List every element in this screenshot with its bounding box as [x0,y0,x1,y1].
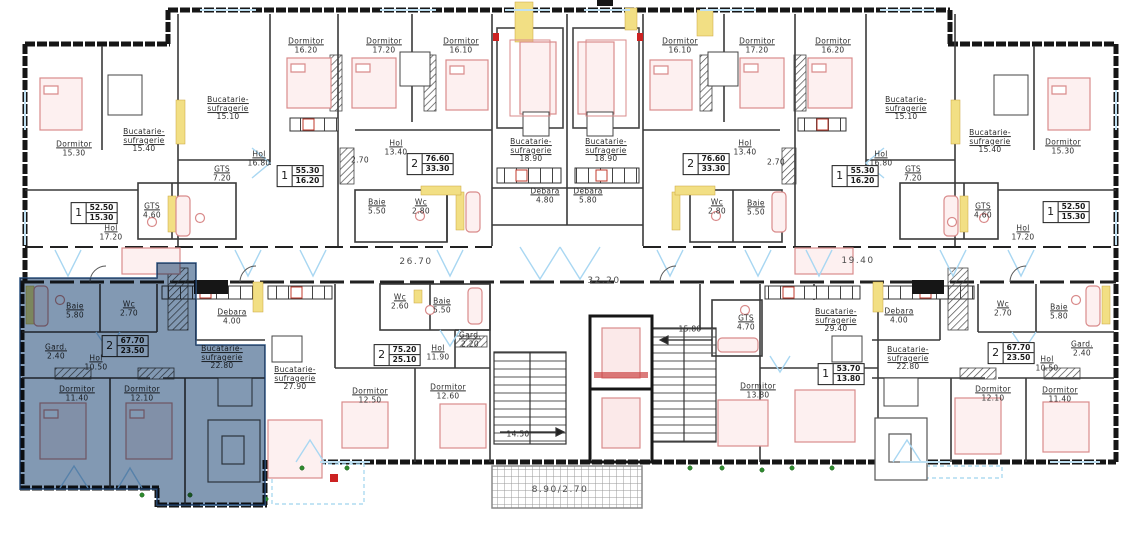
room-name: Bucatarie- sufragerie [887,346,929,363]
room-name: Bucatarie- sufragerie [207,96,249,113]
apartment-badge: 152.5015.30 [71,202,118,224]
room-label: Dormitor13.80 [740,382,776,399]
room-label: Hol17.20 [100,224,123,241]
room-label: Dormitor16.20 [815,37,851,54]
room-label: Hol17.20 [1012,224,1035,241]
room-label: GTS7.20 [904,165,922,182]
badge-room-count: 1 [72,203,87,223]
room-area: 16.20 [815,46,851,55]
room-label: Debara5.80 [573,187,602,204]
room-label: Gard.2.40 [1071,340,1093,357]
room-label: Hol11.90 [427,344,450,361]
room-label: Bucatarie- sufragerie29.40 [815,308,857,334]
apartment-badge: 155.3016.20 [277,165,324,187]
apartment-badge: 152.5015.30 [1043,201,1090,223]
apartment-badge: 155.3016.20 [832,165,879,187]
room-label: Dormitor12.50 [352,387,388,404]
room-area: 29.40 [815,325,857,334]
room-label: Debara4.80 [530,187,559,204]
apartment-badge: 275.2025.10 [374,344,421,366]
room-label: Bucatarie- sufragerie27.90 [274,366,316,392]
room-label: GTS4.70 [737,314,755,331]
room-area: 7.20 [904,174,922,183]
room-area: 13.40 [385,148,408,157]
apartment-badge: 276.6033.30 [683,153,730,175]
room-area: 16.10 [443,46,479,55]
room-area: 4.60 [974,211,992,220]
badge-area-living: 33.30 [699,165,729,174]
room-label: Baie5.50 [368,198,386,215]
dimension-label: 19.40 [841,256,874,266]
room-name: Bucatarie- sufragerie [510,138,552,155]
room-area: 16.80 [248,159,271,168]
room-area: 15.30 [56,149,92,158]
room-area: 12.50 [352,396,388,405]
room-name: Bucatarie- sufragerie [585,138,627,155]
room-area: 2.70 [767,159,785,168]
room-area: 16.20 [288,46,324,55]
room-label: Dormitor12.60 [430,383,466,400]
room-name: Bucatarie- sufragerie [274,366,316,383]
room-label: GTS4.60 [143,202,161,219]
badge-area-living: 15.30 [87,214,117,223]
room-area: 5.50 [747,208,765,217]
badge-area-total: 76.60 [423,154,453,164]
room-area: 17.20 [100,233,123,242]
dimension-label: 8.90/2.70 [532,485,589,495]
room-area: 22.80 [887,363,929,372]
room-label: Dormitor11.40 [1042,386,1078,403]
room-area: 15.40 [123,145,165,154]
badge-area-total: 53.70 [834,364,864,374]
room-area: 12.60 [430,392,466,401]
badge-area-total: 76.60 [699,154,729,164]
room-label: 15.80 [679,326,702,335]
room-area: 2.70 [351,157,369,166]
room-label: Dormitor17.20 [739,37,775,54]
room-label: Dormitor16.20 [288,37,324,54]
badge-room-count: 1 [1044,202,1059,222]
room-area: 4.00 [884,316,913,325]
room-area: 4.60 [143,211,161,220]
room-area: 4.70 [737,323,755,332]
room-area: 11.40 [1042,395,1078,404]
room-area: 5.50 [433,306,451,315]
room-area: 12.10 [975,394,1011,403]
room-name: Bucatarie- sufragerie [815,308,857,325]
room-label: Dormitor12.10 [975,385,1011,402]
badge-area-total: 75.20 [390,345,420,355]
room-label: Bucatarie- sufragerie15.40 [123,128,165,154]
room-area: 16.10 [662,46,698,55]
apartment-badge: 276.6033.30 [407,153,454,175]
room-name: Bucatarie- sufragerie [123,128,165,145]
badge-room-count: 1 [819,364,834,384]
badge-room-count: 2 [408,154,423,174]
room-area: 15.40 [969,146,1011,155]
room-area: 13.40 [734,148,757,157]
badge-area-living: 15.30 [1059,213,1089,222]
room-label: Bucatarie- sufragerie22.80 [887,346,929,372]
room-area: 15.30 [1045,147,1081,156]
room-area: 13.80 [740,391,776,400]
room-label: Baie5.50 [747,199,765,216]
room-label: Debara4.00 [217,308,246,325]
room-label: Dormitor15.30 [56,140,92,157]
badge-area-total: 52.50 [1059,202,1089,212]
room-area: 2.40 [1071,349,1093,358]
room-name: Bucatarie- sufragerie [969,129,1011,146]
room-label: Baie5.50 [433,297,451,314]
apartment-badge: 153.7013.80 [818,363,865,385]
badge-area-living: 13.80 [834,375,864,384]
room-label: Bucatarie- sufragerie15.10 [207,96,249,122]
room-label: Wc2.70 [994,300,1012,317]
room-area: 4.00 [217,317,246,326]
room-area: 5.80 [1050,312,1068,321]
room-area: 27.90 [274,383,316,392]
room-label: Hol13.40 [734,139,757,156]
room-label: Wc2.80 [708,198,726,215]
room-label: Dormitor16.10 [443,37,479,54]
room-area: 2.80 [708,207,726,216]
badge-room-count: 1 [833,166,848,186]
room-label: Dormitor15.30 [1045,138,1081,155]
badge-room-count: 2 [684,154,699,174]
room-area: 15.10 [207,113,249,122]
badge-area-living: 16.20 [293,177,323,186]
room-area: 18.90 [510,155,552,164]
badge-area-living: 23.50 [1004,354,1034,363]
room-area: 18.90 [585,155,627,164]
room-area: 17.20 [366,46,402,55]
room-area: 4.80 [530,196,559,205]
room-label: Hol13.40 [385,139,408,156]
room-area: 5.80 [573,196,602,205]
room-area: 2.20 [459,340,481,349]
badge-area-living: 25.10 [390,356,420,365]
room-area: 10.50 [1036,364,1059,373]
room-area: 5.50 [368,207,386,216]
room-area: 14.50 [507,431,530,440]
badge-area-total: 55.30 [848,166,878,176]
room-label: Hol10.50 [1036,355,1059,372]
room-area: 2.70 [994,309,1012,318]
room-label: Dormitor16.10 [662,37,698,54]
room-label: Bucatarie- sufragerie18.90 [510,138,552,164]
badge-room-count: 1 [278,166,293,186]
room-label: 2.70 [767,159,785,168]
room-label: GTS7.20 [213,165,231,182]
room-label: Debara4.00 [884,307,913,324]
room-label: Wc2.60 [391,293,409,310]
room-area: 17.20 [739,46,775,55]
dimension-label: 32.20 [587,276,620,286]
room-area: 15.80 [679,326,702,335]
room-area: 15.10 [885,113,927,122]
room-label: Dormitor17.20 [366,37,402,54]
room-label: 14.50 [507,431,530,440]
room-area: 7.20 [213,174,231,183]
dimension-label: 26.70 [399,257,432,267]
room-label: Bucatarie- sufragerie15.10 [885,96,927,122]
room-label: Bucatarie- sufragerie18.90 [585,138,627,164]
room-label: Wc2.80 [412,198,430,215]
floorplan-page: Dormitor15.30Bucatarie- sufragerie15.40G… [0,0,1134,539]
room-label: Bucatarie- sufragerie15.40 [969,129,1011,155]
room-area: 2.80 [412,207,430,216]
room-label: Hol16.80 [248,150,271,167]
badge-area-total: 55.30 [293,166,323,176]
room-label: Baie5.80 [1050,303,1068,320]
room-label: Gard.2.20 [459,331,481,348]
badge-room-count: 2 [989,343,1004,363]
room-area: 2.60 [391,302,409,311]
badge-area-total: 67.70 [1004,343,1034,353]
room-area: 11.90 [427,353,450,362]
badge-area-total: 52.50 [87,203,117,213]
room-label: GTS4.60 [974,202,992,219]
room-area: 17.20 [1012,233,1035,242]
apartment-badge: 267.7023.50 [988,342,1035,364]
room-label: 2.70 [351,157,369,166]
badge-area-living: 16.20 [848,177,878,186]
badge-room-count: 2 [375,345,390,365]
badge-area-living: 33.30 [423,165,453,174]
room-name: Bucatarie- sufragerie [885,96,927,113]
